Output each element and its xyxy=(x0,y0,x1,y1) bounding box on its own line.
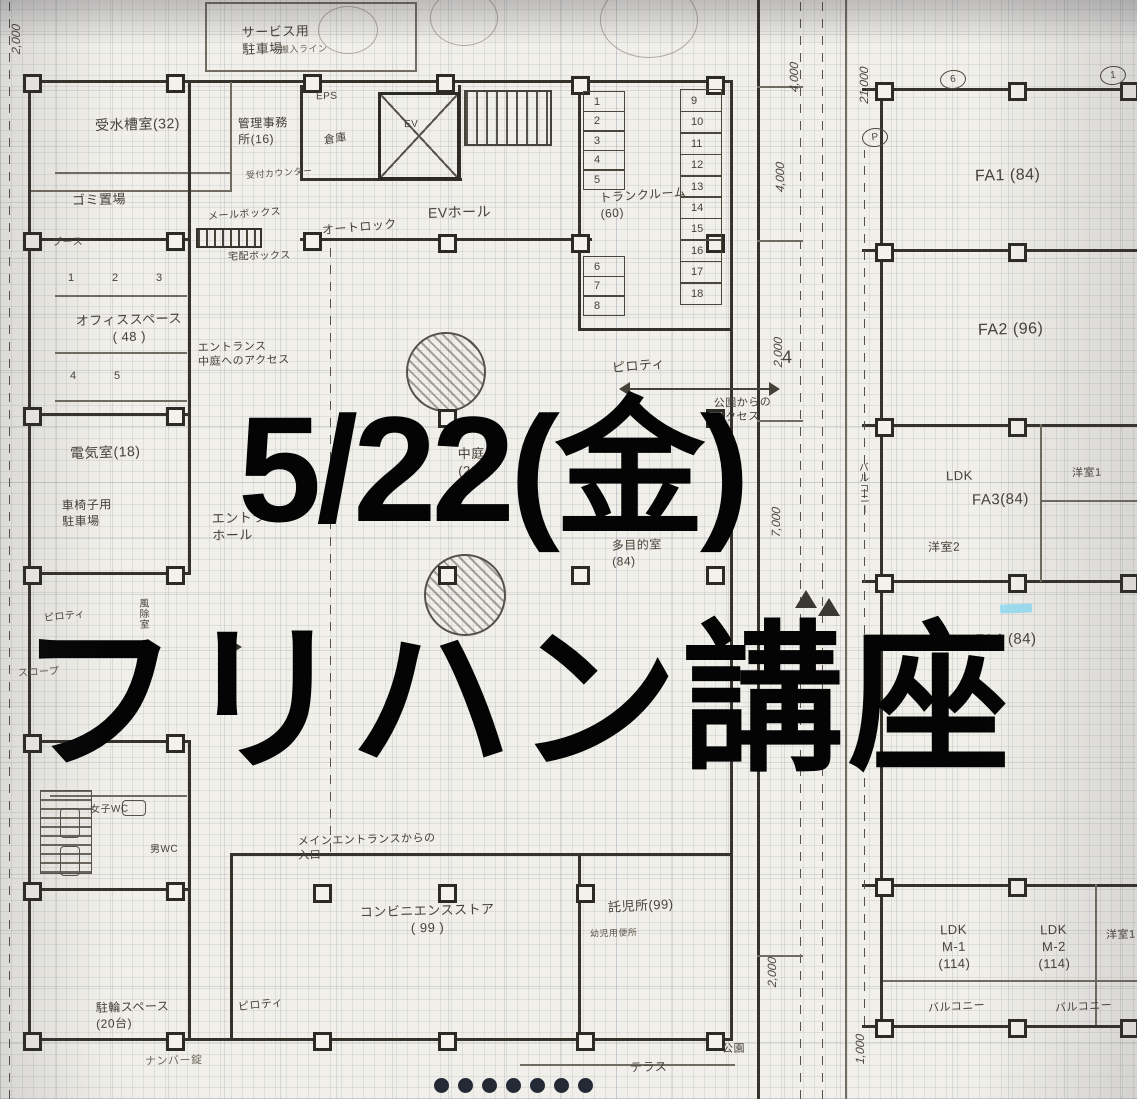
column xyxy=(313,1032,332,1051)
wall xyxy=(862,580,1137,583)
balcony-edge xyxy=(864,150,865,1025)
locker-cell: 2 xyxy=(583,111,625,132)
column xyxy=(1008,1019,1027,1038)
locker-cell: 12 xyxy=(680,154,722,177)
column xyxy=(1008,574,1027,593)
wall xyxy=(28,1038,733,1041)
note-bicycle-parking: 駐輪スペース (20台) xyxy=(96,999,170,1032)
column xyxy=(1120,82,1137,101)
column xyxy=(875,878,894,897)
column xyxy=(166,407,185,426)
carousel-dot[interactable] xyxy=(554,1078,569,1093)
column xyxy=(571,566,590,585)
dim-label: 4,000 xyxy=(773,144,787,209)
column xyxy=(313,884,332,903)
wall xyxy=(205,2,417,4)
room-label-ev-hall: EVホール xyxy=(428,202,492,222)
booth-number: 2 xyxy=(112,272,156,284)
room-label-daycare: 託児所(99) xyxy=(608,896,674,916)
column xyxy=(571,234,590,253)
column xyxy=(1008,418,1027,437)
locker-cell: 15 xyxy=(680,218,722,241)
tree xyxy=(600,0,698,58)
column xyxy=(576,1032,595,1051)
wall xyxy=(862,424,1137,427)
column xyxy=(706,566,725,585)
note-piloti-bottom: ピロティ xyxy=(237,996,284,1015)
wall xyxy=(205,2,207,72)
wall xyxy=(862,249,1137,252)
unit-label-fa2: FA2 (96) xyxy=(978,319,1044,342)
column xyxy=(166,566,185,585)
column xyxy=(1120,1019,1137,1038)
carousel-dots[interactable] xyxy=(434,1078,602,1093)
note-toddler-wc: 幼児用便所 xyxy=(590,927,638,940)
wall xyxy=(55,295,187,297)
wall xyxy=(28,80,730,83)
column xyxy=(23,566,42,585)
wall xyxy=(862,88,1137,91)
grid-marker: P xyxy=(861,127,889,149)
locker-cell: 16 xyxy=(680,239,722,262)
booth-number: 3 xyxy=(156,272,200,284)
column xyxy=(875,82,894,101)
dim-label: 1,000 xyxy=(853,1016,867,1081)
dim-label: 21,000 xyxy=(857,52,871,117)
locker-cell: 6 xyxy=(583,256,625,277)
boundary-line xyxy=(845,0,847,1099)
column xyxy=(875,1019,894,1038)
column xyxy=(1008,82,1027,101)
dim-tick xyxy=(757,240,803,242)
room-label-bedroom2: 洋室2 xyxy=(928,540,961,556)
note-terrace: テラス xyxy=(630,1060,668,1077)
carousel-dot[interactable] xyxy=(482,1078,497,1093)
booth-number: 5 xyxy=(114,370,158,382)
wall xyxy=(578,853,581,1040)
wall xyxy=(205,70,417,72)
locker-cell: 10 xyxy=(680,111,722,134)
wall xyxy=(230,82,232,192)
note-service-line: 搬入ライン xyxy=(280,43,328,56)
wall xyxy=(578,85,581,331)
note-balcony-side: バルコニー xyxy=(855,462,869,515)
column xyxy=(576,884,595,903)
locker-cell: 18 xyxy=(680,282,722,305)
tree xyxy=(430,0,498,46)
wc-fixture xyxy=(60,808,80,838)
carousel-dot[interactable] xyxy=(458,1078,473,1093)
note-park: 公園 xyxy=(722,1042,745,1057)
stairs xyxy=(464,90,552,146)
column xyxy=(23,882,42,901)
room-label-manager-office: 管理事務 所(16) xyxy=(238,115,289,147)
column xyxy=(438,884,457,903)
column xyxy=(166,882,185,901)
carousel-dot[interactable] xyxy=(578,1078,593,1093)
column xyxy=(1008,243,1027,262)
dim-note: 4 xyxy=(782,346,793,370)
dim-tick xyxy=(757,955,803,957)
column xyxy=(166,1032,185,1051)
column xyxy=(875,574,894,593)
carousel-dot[interactable] xyxy=(506,1078,521,1093)
column xyxy=(23,74,42,93)
booth-numbers: 45 xyxy=(70,370,158,382)
booth-number: 1 xyxy=(68,272,112,284)
room-label-wheelchair-parking: 車椅子用 駐車場 xyxy=(62,497,113,529)
room-label-bedroom1-top: 洋室1 xyxy=(1072,466,1102,481)
wc-fixture xyxy=(60,846,80,876)
column xyxy=(1120,574,1137,593)
room-label-eps: EPS xyxy=(316,90,338,104)
center-line xyxy=(800,0,801,1099)
room-label-electrical: 電気室(18) xyxy=(70,442,141,463)
booth-number: 4 xyxy=(70,370,114,382)
carousel-dot[interactable] xyxy=(530,1078,545,1093)
wall xyxy=(862,1025,1137,1028)
note-main-entrance: メインエントランスからの 入口 xyxy=(298,831,436,863)
room-label-garbage: ゴミ置場 xyxy=(72,191,126,209)
wall xyxy=(230,853,233,1040)
note-delivery-box: 宅配ボックス xyxy=(228,249,291,264)
room-label-convenience: コンビニエンスストア ( 99 ) xyxy=(360,901,496,938)
column xyxy=(166,232,185,251)
mailbox-unit xyxy=(196,228,262,248)
column xyxy=(23,232,42,251)
note-auto-lock: オートロック xyxy=(321,217,397,239)
trunk-lockers: 12345 xyxy=(583,93,625,190)
wall xyxy=(188,80,191,575)
locker-cell: 5 xyxy=(583,169,625,190)
boundary-line xyxy=(757,0,760,1099)
wall xyxy=(55,400,187,402)
unit-label-ldk-m1: LDK M-1 (114) xyxy=(937,922,970,973)
wall xyxy=(55,352,187,354)
room-label-bedroom1-bottom: 洋室1 xyxy=(1106,928,1136,943)
trunk-lockers: 678 xyxy=(583,258,625,316)
unit-label-fa3: FA3(84) xyxy=(972,489,1029,510)
dim-label: 2,000 xyxy=(765,939,779,1004)
note-mail-box: メールボックス xyxy=(208,205,282,223)
center-line xyxy=(822,0,823,1099)
column xyxy=(303,232,322,251)
dim-label: 2,000 xyxy=(9,6,23,71)
column xyxy=(438,1032,457,1051)
locker-cell: 4 xyxy=(583,150,625,171)
floor-plan-sketch-photo: サービス用 駐車場 搬入ライン 受水槽室(32) 管理事務 所(16) ゴミ置場… xyxy=(0,0,1137,1099)
column xyxy=(438,234,457,253)
column xyxy=(23,1032,42,1051)
room-label-booth: ブース xyxy=(52,236,83,250)
overlay-title-text: フリハン講座 xyxy=(18,620,1014,782)
room-label-office-space: オフィススペース ( 48 ) xyxy=(76,311,183,348)
locker-cell: 1 xyxy=(583,91,625,112)
wall xyxy=(28,190,230,192)
wall xyxy=(730,80,733,1040)
wall xyxy=(520,1064,735,1066)
note-number-lock: ナンバー錠 xyxy=(145,1053,203,1069)
locker-cell: 11 xyxy=(680,132,722,155)
column xyxy=(23,407,42,426)
carousel-dot[interactable] xyxy=(434,1078,449,1093)
note-piloti-center: ピロティ xyxy=(611,356,666,377)
column xyxy=(166,74,185,93)
locker-cell: 3 xyxy=(583,130,625,151)
overlay-date-text: 5/22(金) xyxy=(238,394,745,544)
unit-label-ldk-m2: LDK M-2 (114) xyxy=(1037,922,1070,973)
site-boundary xyxy=(9,0,10,1099)
room-label-ev: EV xyxy=(404,118,419,131)
room-label-mens-wc: 男WC xyxy=(150,843,179,857)
note-entrance-access: エントランス 中庭へのアクセス xyxy=(198,339,290,370)
room-label-womens-wc: 女子WC xyxy=(90,802,129,816)
wall xyxy=(578,328,730,331)
column xyxy=(438,566,457,585)
column xyxy=(1008,878,1027,897)
locker-cell: 7 xyxy=(583,276,625,297)
dim-label: 4,000 xyxy=(787,44,801,109)
locker-cell: 8 xyxy=(583,295,625,316)
room-label-storage: 倉庫 xyxy=(323,130,348,147)
locker-cell: 17 xyxy=(680,261,722,284)
wall xyxy=(55,172,230,174)
unit-label-fa1: FA1 (84) xyxy=(975,165,1041,188)
booth-numbers: 123 xyxy=(68,272,200,284)
room-label-ldk: LDK xyxy=(946,468,973,486)
dim-label: 7,000 xyxy=(769,489,783,554)
room-label-water-tank: 受水槽室(32) xyxy=(95,114,180,134)
column xyxy=(875,243,894,262)
tree-symbol xyxy=(795,590,817,608)
elevator-shaft xyxy=(378,92,460,180)
balcony-line xyxy=(880,980,1137,982)
note-balcony-m2: バルコニー xyxy=(1055,999,1113,1016)
room-label-trunk-room: トランクルーム (60) xyxy=(599,185,688,222)
column xyxy=(436,74,455,93)
note-balcony-m1: バルコニー xyxy=(928,999,986,1016)
column xyxy=(875,418,894,437)
wall xyxy=(1040,424,1042,582)
wall xyxy=(415,2,417,72)
locker-cell: 9 xyxy=(680,89,722,112)
wall xyxy=(1040,500,1137,502)
